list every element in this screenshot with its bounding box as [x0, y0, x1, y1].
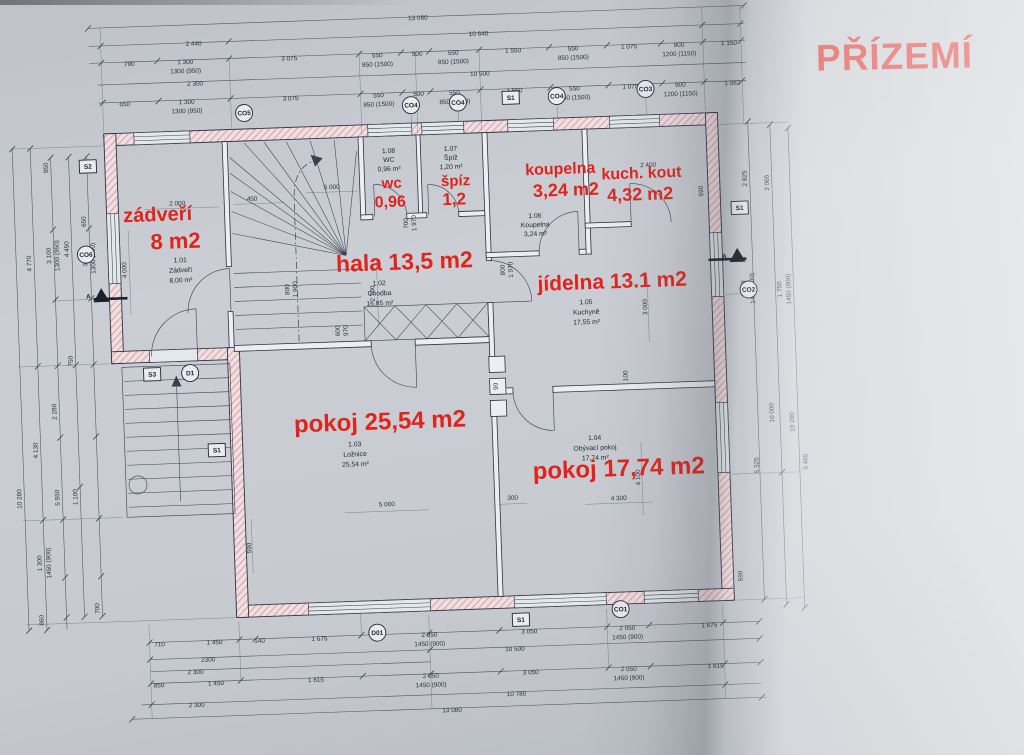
- dimension-label: 2 825: [741, 170, 749, 187]
- entrance-door-opening: [149, 349, 197, 363]
- dimension-label: 2 050: [621, 666, 638, 674]
- dimension-label: 300: [507, 495, 518, 502]
- window: [710, 232, 724, 296]
- section-marker: [93, 288, 109, 303]
- reference-marker-label: CO6: [79, 252, 93, 259]
- dimension-label: 4 770: [26, 255, 34, 272]
- dimension-label: 1 970: [411, 215, 419, 232]
- dimension-label: 700: [403, 217, 410, 228]
- dimension-label: 1 300: [179, 99, 196, 107]
- stair-walk-line: [293, 160, 323, 341]
- reference-marker-label: A: [722, 253, 727, 260]
- window: [507, 118, 553, 132]
- room-label-pokoj17: pokoj 17,74 m2: [532, 452, 705, 485]
- dimension-label: 1450 (900): [785, 273, 793, 304]
- dimension-label: 5 550: [54, 489, 62, 506]
- dimension-label: 5 465: [802, 453, 810, 470]
- dimension-label: 1 550: [505, 47, 522, 55]
- room-info-area: 8,00 m²: [169, 277, 193, 285]
- dimension-label: 3 100: [46, 247, 54, 264]
- dimension-label: 590: [737, 570, 744, 581]
- dimension-label: 1 815: [708, 663, 725, 671]
- dimension-label: 1 300: [36, 555, 44, 572]
- section-marker: [729, 248, 745, 263]
- dimension-label: 1 075: [622, 83, 639, 91]
- room-label-koupelna-area: 3,24 m2: [533, 179, 600, 201]
- dimension-label: 1 082: [724, 80, 741, 88]
- dimension-label: 1 300: [177, 59, 194, 67]
- dimension-label: 750: [67, 355, 74, 366]
- room-info-name: Chodba: [367, 290, 391, 298]
- reference-marker-label: A: [86, 293, 91, 300]
- dimension-labels-right: 2 8253 0651 7501450 (900)1 7501450 (900)…: [723, 168, 813, 581]
- room-label-kuchkout-area: 4,32 m2: [607, 183, 674, 205]
- dimension-label: 850: [154, 682, 165, 689]
- room-info-area: 0,96 m²: [378, 166, 402, 174]
- builtin-wardrobe: [364, 303, 489, 341]
- room-info-area: 1,20 m²: [439, 163, 463, 171]
- reference-marker-label: S1: [507, 95, 516, 102]
- dimension-label: 500: [412, 51, 423, 58]
- room-info-name: Zádveří: [169, 267, 192, 275]
- room-label-pokoj25: pokoj 25,54 m2: [294, 405, 467, 438]
- room-label-koupelna: koupelna: [525, 160, 596, 179]
- room-info-num: 1.03: [348, 441, 362, 448]
- dimension-label: 1 970: [507, 261, 515, 278]
- dimension-label: 1450 (900): [416, 681, 447, 689]
- dimension-label: 10 500: [470, 70, 490, 78]
- room-label-spiz-area: 1,2: [442, 189, 466, 209]
- dimension-label: 3 075: [283, 95, 300, 103]
- reference-marker-label: CO4: [550, 93, 564, 100]
- room-info-area: 17,55 m²: [573, 319, 601, 327]
- dimension-label: 650: [81, 216, 88, 227]
- room-info-num: 1.08: [382, 148, 396, 155]
- dimension-label: 4 300: [611, 495, 628, 503]
- room-label-jidelna: jídelna 13.1 m2: [536, 268, 687, 296]
- reference-marker-label: CO3: [639, 86, 653, 93]
- dimension-label: 10 780: [507, 690, 527, 698]
- dimension-label: 13 080: [408, 15, 428, 23]
- room-label-wc-area: 0,96: [374, 193, 406, 211]
- window: [107, 213, 121, 283]
- reference-marker-label: CO4: [404, 102, 418, 109]
- dimension-label: 550: [373, 92, 384, 99]
- dimension-labels-bottom: 7101 4501401 6752 0501450 (900)3 0502 05…: [152, 622, 725, 725]
- reference-marker-label: D1: [186, 370, 195, 377]
- reference-marker-label: CO1: [614, 606, 628, 613]
- stair-direction-arrow: [311, 154, 323, 166]
- dimension-label: 5 000: [324, 184, 341, 192]
- dimension-label: 900: [675, 82, 686, 89]
- room-label-wc: wc: [380, 175, 402, 193]
- room-info-area: 3,24 m²: [524, 230, 548, 238]
- dimension-label: 140: [254, 638, 265, 645]
- dimension-label: 1300 (950): [170, 67, 201, 75]
- reference-marker-label: CO2: [742, 287, 756, 294]
- dimension-label: 550: [568, 45, 579, 52]
- reference-marker-label: D01: [371, 630, 384, 637]
- dimension-label: 3 050: [523, 669, 540, 677]
- exterior-staircase: [122, 364, 235, 518]
- window: [609, 114, 659, 128]
- dimension-label: 1200 (1150): [662, 50, 696, 58]
- dimension-label: 650: [119, 101, 130, 108]
- dimension-label: 4 130: [32, 442, 40, 459]
- dimension-label: 10 000: [769, 402, 777, 422]
- room-info-name: Obývací pokoj: [573, 444, 617, 453]
- room-info-name: Špíž: [444, 153, 459, 162]
- dimension-label: 900: [674, 42, 685, 49]
- dimension-label: 710: [154, 641, 165, 648]
- dimension-label: 850 (1500): [363, 101, 394, 109]
- room-label-hala: hala 13,5 m2: [336, 246, 474, 277]
- window: [134, 131, 190, 145]
- dimension-label: 850 (1500): [362, 61, 393, 69]
- floorplan-photo: 13 0802 44010 6407901 3001300 (950)3 075…: [0, 0, 1024, 755]
- dimension-label: 1 450: [208, 680, 225, 688]
- dimension-label: 1450 (900): [613, 674, 644, 682]
- dimension-label: 550: [569, 85, 580, 92]
- dimension-label: 550: [372, 52, 383, 59]
- dimension-label: 10 500: [505, 646, 525, 654]
- room-info-num: 1.04: [588, 435, 602, 442]
- dimension-label: 4 450: [63, 241, 71, 258]
- window: [308, 599, 430, 615]
- dimension-label: 10 280: [16, 489, 24, 509]
- room-info-name: WC: [383, 157, 395, 164]
- room-info-area: 25,54 m²: [342, 461, 370, 469]
- interior-staircase: [229, 139, 363, 343]
- dimension-label: 3 050: [521, 628, 538, 636]
- dimension-label: 1450 (900): [45, 547, 53, 578]
- room-info-num: 1.06: [528, 213, 542, 220]
- dimension-label: 1300 (950): [53, 240, 61, 271]
- dimension-label: 590: [698, 185, 705, 196]
- dimension-label: 10 640: [469, 30, 489, 38]
- dimension-label: 590: [246, 542, 253, 553]
- dimension-label: 5 325: [753, 457, 761, 474]
- drawing-title: PŘÍZEMÍ: [816, 34, 974, 79]
- dimension-label: 800: [284, 284, 291, 295]
- dimension-label: 950: [43, 162, 50, 173]
- dimension-label: 1200 (1150): [664, 90, 698, 98]
- dimension-label: 450: [247, 196, 258, 203]
- room-label-zadveri-area: 8 m2: [150, 228, 201, 255]
- dimension-label: 1450 (900): [414, 640, 445, 648]
- dimension-label: 850 (1500): [438, 58, 469, 66]
- dimension-label: 1 900: [292, 281, 300, 298]
- room-label-zadveri: zádveří: [123, 203, 194, 227]
- dimension-label: 100: [622, 370, 629, 381]
- dimension-label: 850 (1500): [558, 54, 589, 62]
- room-label-spiz: špíz: [441, 172, 471, 190]
- window: [644, 589, 698, 603]
- dimension-label: 2 300: [187, 669, 204, 677]
- window: [422, 121, 464, 134]
- room-info-num: 1.02: [372, 280, 386, 287]
- dimension-label: 790: [124, 61, 135, 68]
- dimension-label: 4 000: [121, 262, 129, 279]
- dimension-label: 2 050: [619, 625, 636, 633]
- dimension-label: 600: [335, 325, 342, 336]
- room-info-name: Koupelna: [521, 221, 550, 229]
- room-info-name: Ložnice: [343, 451, 367, 459]
- dimension-label: 800: [500, 264, 507, 275]
- dimension-label: 5 000: [379, 501, 396, 509]
- room-info-name: Kuchyně: [573, 309, 600, 317]
- reference-marker-label: S2: [84, 164, 93, 171]
- dimension-label: 2 300: [187, 80, 204, 88]
- dimension-label: 2 050: [421, 632, 438, 640]
- floorplan: 13 0802 44010 6407901 3001300 (950)3 075…: [0, 1, 818, 729]
- dimension-label: 3 075: [281, 55, 298, 63]
- dimension-label: 1 100: [72, 489, 80, 506]
- dimension-label: 2 050: [423, 673, 440, 681]
- dimension-label: 1300 (950): [171, 107, 202, 115]
- reference-marker-label: S3: [148, 372, 157, 379]
- window: [368, 123, 412, 137]
- room-info-num: 1.05: [579, 299, 593, 306]
- dimension-label: 3 065: [764, 174, 772, 191]
- dimension-label: 1450 (900): [612, 633, 643, 641]
- dimension-label: 3 000: [642, 299, 650, 316]
- dimension-label: 2 440: [186, 40, 203, 48]
- dimension-label: 1 675: [311, 635, 328, 643]
- dimension-label: 10 280: [789, 412, 797, 432]
- dimension-labels-top: 13 0802 44010 6407901 3001300 (950)3 075…: [117, 4, 742, 118]
- room-label-kuchkout: kuch. kout: [601, 164, 682, 184]
- dimension-label: 1 675: [701, 622, 718, 630]
- dimension-label: 90: [493, 382, 500, 390]
- dimension-label: 1 750: [776, 281, 784, 298]
- dimension-label: 2 300: [189, 702, 206, 710]
- reference-marker-label: CO4: [451, 100, 465, 107]
- room-info-num: 1.07: [444, 146, 458, 153]
- room-info-area: 16,85 m²: [366, 300, 394, 308]
- reference-marker-label: S1: [213, 447, 222, 454]
- reference-marker-label: CO5: [237, 110, 251, 117]
- floorplan-drawing: 13 0802 44010 6407901 3001300 (950)3 075…: [0, 0, 1024, 755]
- room-info-num: 1.01: [173, 257, 187, 264]
- reference-marker-label: S1: [517, 617, 526, 624]
- dimension-label: 700: [94, 603, 101, 614]
- dimension-label: 13 080: [442, 707, 462, 715]
- reference-marker-label: S1: [736, 205, 745, 212]
- dimension-label: 1 150: [721, 40, 738, 48]
- dimension-label: 970: [343, 325, 350, 336]
- stair-direction-arrow: [171, 375, 181, 386]
- dimension-label: 1 450: [206, 639, 223, 647]
- window: [715, 402, 729, 472]
- dimension-label: 860: [38, 614, 45, 625]
- dimension-label: 550: [448, 49, 459, 56]
- dimension-label: 1 075: [621, 43, 638, 51]
- dimension-label: 2300: [201, 656, 216, 664]
- dimension-label: 1 815: [308, 677, 325, 685]
- dimension-label: 2 280: [51, 403, 59, 420]
- dimension-label: 500: [413, 91, 424, 98]
